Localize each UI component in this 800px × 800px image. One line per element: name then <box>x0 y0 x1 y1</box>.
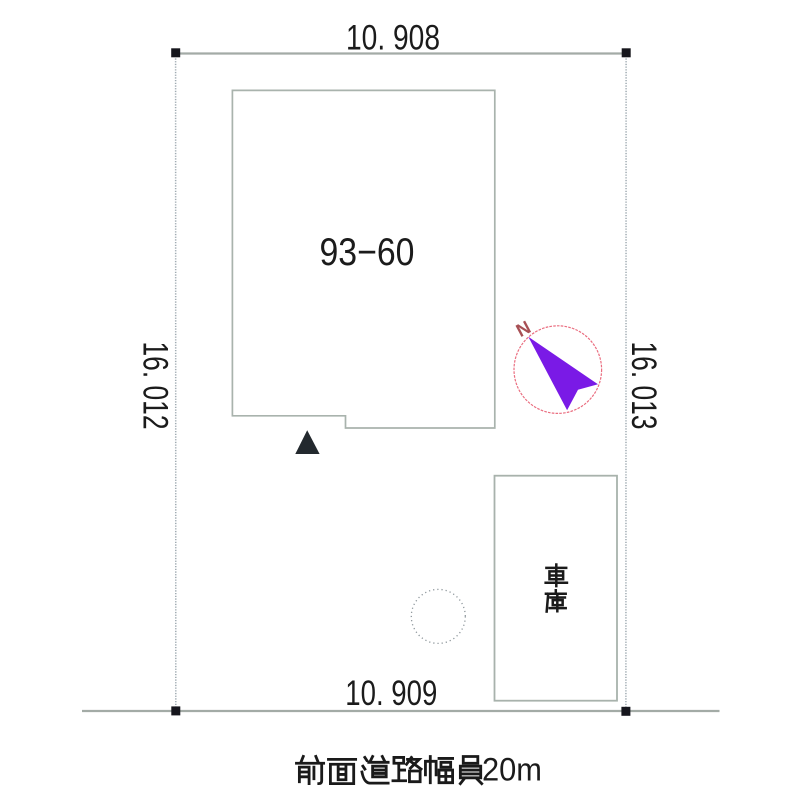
svg-text:20m: 20m <box>482 752 542 788</box>
svg-text:N: N <box>512 316 534 341</box>
svg-text:16. 013: 16. 013 <box>624 342 663 430</box>
svg-text:10. 909: 10. 909 <box>345 674 437 713</box>
svg-text:16. 012: 16. 012 <box>136 342 175 430</box>
svg-text:93−60: 93−60 <box>320 231 415 274</box>
svg-text:10. 908: 10. 908 <box>346 19 440 58</box>
